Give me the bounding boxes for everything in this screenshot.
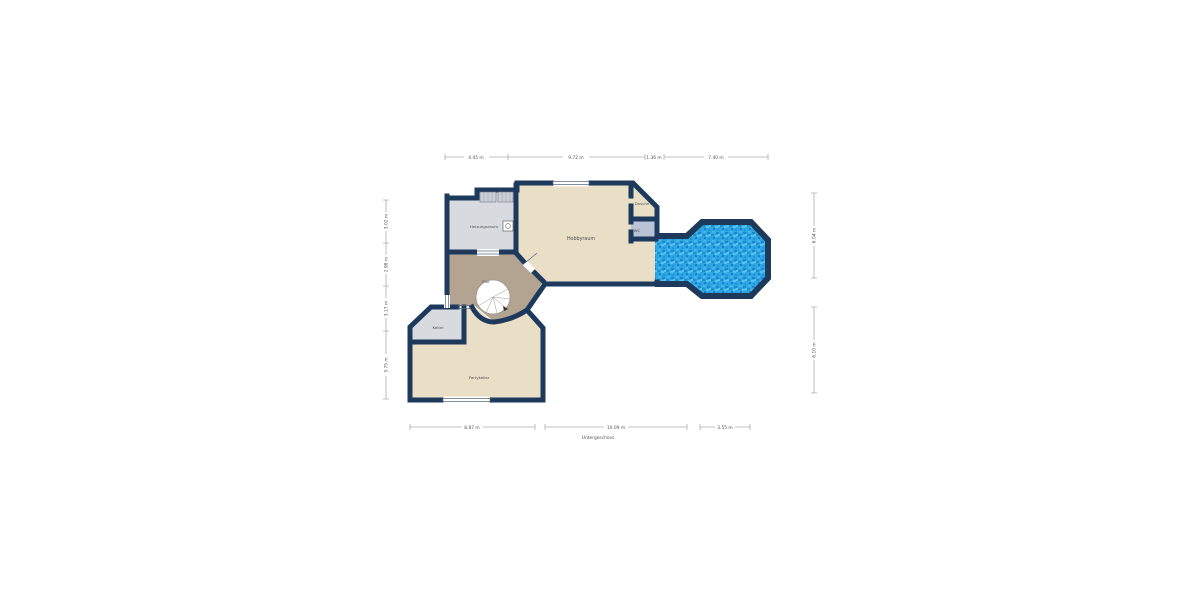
dim-top: 4.45 m 9.72 m 1.36 m 7.40 m — [445, 154, 768, 161]
dim-right-1: 6.10 m — [812, 342, 818, 357]
dim-top-0: 4.45 m — [468, 155, 483, 161]
dim-right-0: 6.04 m — [812, 228, 818, 243]
label-heizungsraum: Heizungsraum — [470, 224, 498, 229]
label-hobbyraum: Hobbyraum — [567, 236, 595, 242]
label-keller: Keller — [433, 325, 444, 330]
floor-plan-canvas: Heizungsraum Hobbyraum Dusche WC Flur Ke… — [0, 0, 1200, 600]
spiral-stair-icon — [476, 280, 510, 314]
plan-caption: Untergeschoss — [582, 435, 615, 441]
window — [443, 397, 490, 404]
dim-left-2: 3.17 m — [384, 301, 390, 316]
dim-left-0: 3.02 m — [384, 214, 390, 229]
dim-bottom-1: 10.09 m — [607, 425, 625, 431]
dim-top-3: 7.40 m — [708, 155, 723, 161]
floor-plan-drawing: Heizungsraum Hobbyraum Dusche WC Flur Ke… — [0, 0, 1200, 600]
dim-bottom-2: 3.55 m — [717, 425, 732, 431]
label-partykeller: Partykeller — [469, 375, 490, 380]
window — [444, 295, 450, 308]
dim-bottom: 8.87 m 10.09 m 3.55 m — [410, 424, 750, 431]
label-dusche: Dusche — [635, 201, 650, 206]
window — [477, 249, 499, 256]
dim-right: 6.04 m 6.10 m — [811, 193, 818, 393]
window — [553, 180, 589, 187]
dim-bottom-0: 8.87 m — [464, 425, 479, 431]
dim-left: 3.02 m 2.98 m 3.17 m 3.75 m — [383, 200, 390, 399]
dim-left-3: 3.75 m — [384, 357, 390, 372]
label-flur: Flur — [482, 279, 490, 284]
dim-left-1: 2.98 m — [384, 257, 390, 272]
label-wc: WC — [634, 228, 641, 233]
dim-top-2: 1.36 m — [646, 155, 661, 161]
boiler-icon — [503, 221, 513, 231]
dim-top-1: 9.72 m — [568, 155, 583, 161]
